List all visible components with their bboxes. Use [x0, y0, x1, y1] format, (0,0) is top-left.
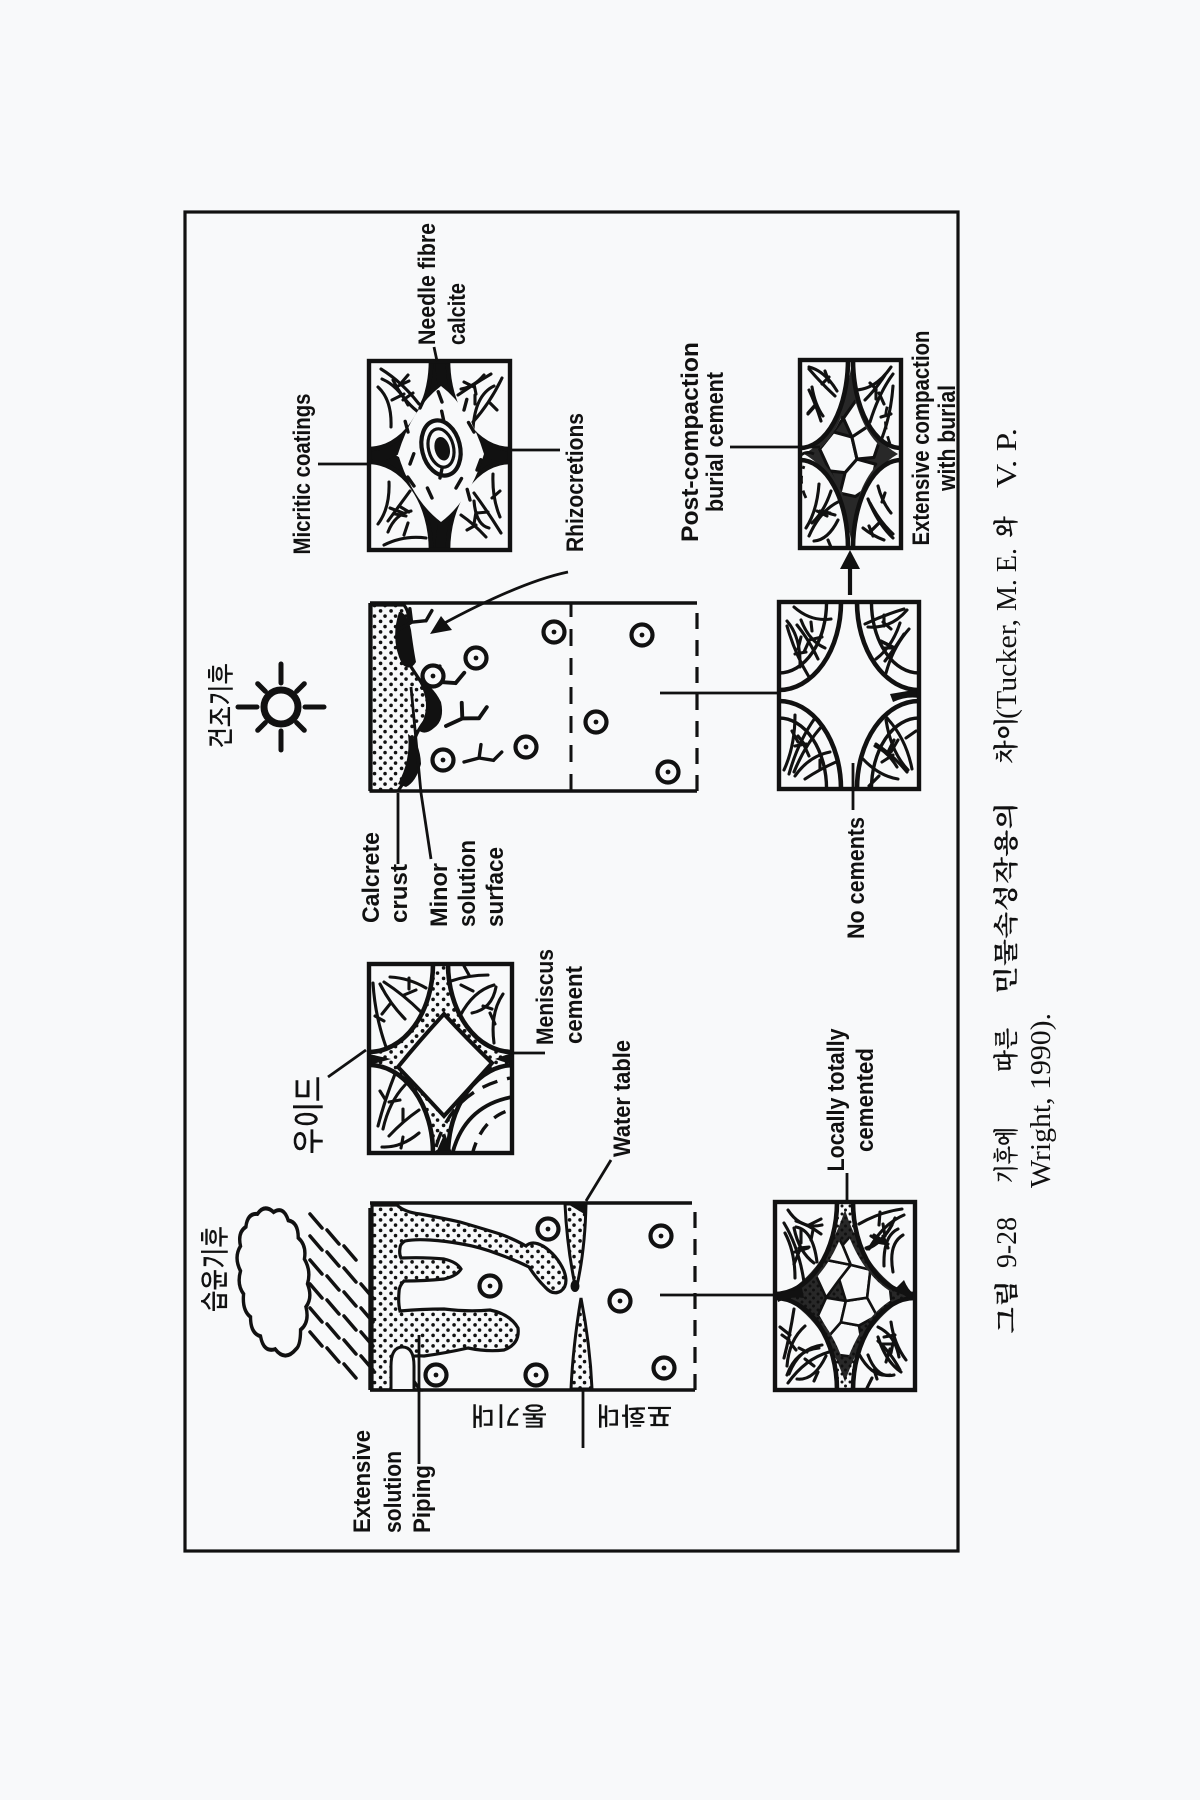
svg-text:crust: crust [386, 864, 413, 923]
svg-text:Extensive compaction: Extensive compaction [908, 331, 935, 546]
svg-text:Locally totally: Locally totally [823, 1028, 850, 1172]
svg-text:cemented: cemented [852, 1048, 879, 1152]
svg-text:V. P.: V. P. [992, 428, 1023, 488]
svg-text:solution: solution [380, 1451, 407, 1533]
svg-text:(Tucker,: (Tucker, [992, 619, 1023, 719]
svg-text:Rhizocretions: Rhizocretions [562, 413, 589, 552]
svg-text:surface: surface [482, 847, 509, 927]
svg-text:Needle fibre: Needle fibre [414, 223, 441, 345]
svg-text:Minor: Minor [426, 863, 453, 927]
svg-text:burial cement: burial cement [702, 372, 729, 512]
svg-text:9-28: 9-28 [991, 1217, 1023, 1268]
svg-text:Wright, 1990).: Wright, 1990). [1026, 1013, 1057, 1188]
svg-text:cement: cement [561, 966, 588, 1044]
svg-text:Extensive: Extensive [349, 1430, 376, 1533]
svg-text:M. E.: M. E. [992, 548, 1023, 611]
svg-text:No cements: No cements [843, 817, 870, 939]
svg-text:with burial: with burial [934, 385, 961, 492]
svg-text:Piping: Piping [409, 1465, 436, 1533]
svg-text:solution: solution [454, 840, 481, 927]
svg-text:calcite: calcite [444, 283, 471, 345]
svg-text:Post-compaction: Post-compaction [677, 342, 704, 542]
svg-text:Calcrete: Calcrete [358, 832, 385, 923]
svg-text:Water table: Water table [609, 1040, 636, 1157]
svg-text:Meniscus: Meniscus [532, 949, 559, 1045]
svg-text:Micritic coatings: Micritic coatings [289, 394, 316, 555]
